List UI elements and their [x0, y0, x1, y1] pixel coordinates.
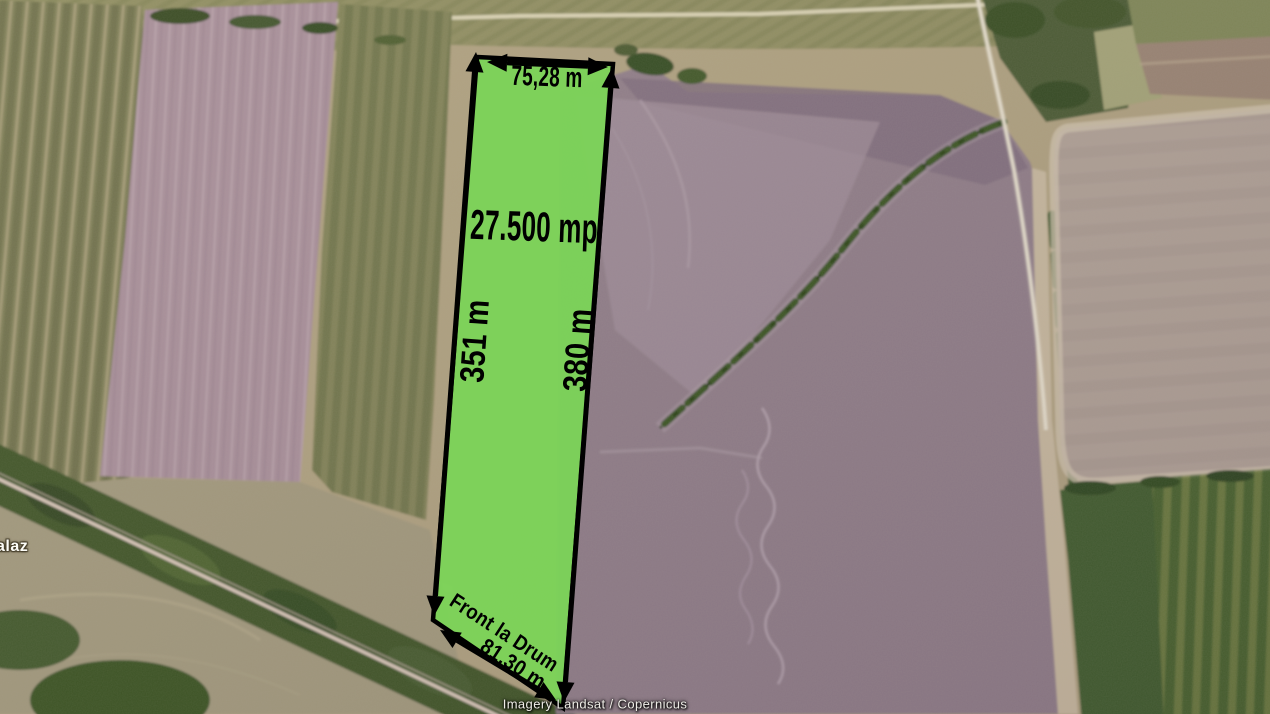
map-attribution: Imagery Landsat / Copernicus: [503, 697, 688, 712]
satellite-map: 75,28 m 27.500 mp 351 m 380 m Front la D…: [0, 0, 1270, 714]
left-length-label: 351 m: [455, 298, 495, 383]
top-width-label: 75,28 m: [511, 62, 583, 92]
place-name-label: alaz: [0, 538, 28, 556]
right-length-label: 380 m: [558, 307, 598, 392]
area-label: 27.500 mp: [469, 204, 598, 250]
plot-overlay: [0, 0, 1270, 714]
